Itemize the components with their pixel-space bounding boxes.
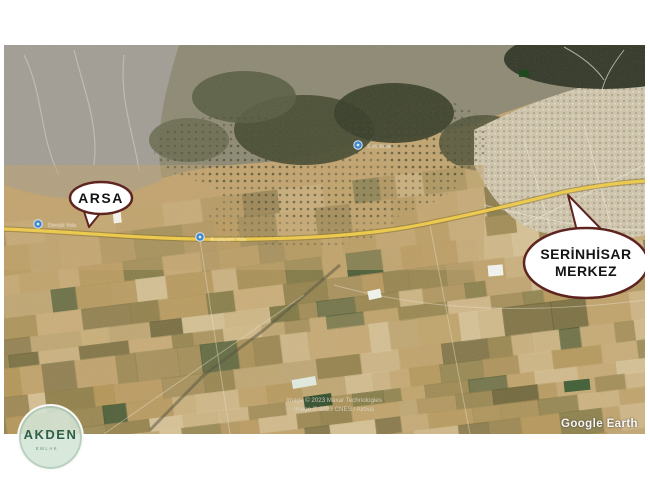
attribution-line2: Image © 2023 CNES / Airbus [294,406,374,413]
white-building [488,264,504,276]
map-marker-poi [354,141,362,149]
google-earth-watermark: Google Earth [561,418,638,430]
agency-logo: AKDEN EMLAK [17,404,84,471]
road-label-center: Acıpayam Yolu [210,237,246,243]
callout-merkez-line1: SERİNHİSAR [540,246,631,262]
satellite-map-canvas: Denizli Yolu Acıpayam Yolu Serinhisar AR… [4,45,645,434]
dark-green-field [519,70,529,77]
poi-label: Serinhisar [367,144,392,150]
map-marker-left [34,220,42,228]
agency-logo-subtitle: EMLAK [35,446,58,450]
agency-logo-title: AKDEN [24,428,78,441]
attribution-line1: Image © 2023 Maxar Technologies [286,397,382,404]
road-label-left: Denizli Yolu [48,223,76,229]
callout-arsa-text: ARSA [78,190,124,206]
white-border-frame: Denizli Yolu Acıpayam Yolu Serinhisar AR… [0,0,650,487]
callout-merkez-line2: MERKEZ [555,263,617,279]
map-marker-center [196,233,204,241]
satellite-map-image: Denizli Yolu Acıpayam Yolu Serinhisar AR… [4,45,645,434]
